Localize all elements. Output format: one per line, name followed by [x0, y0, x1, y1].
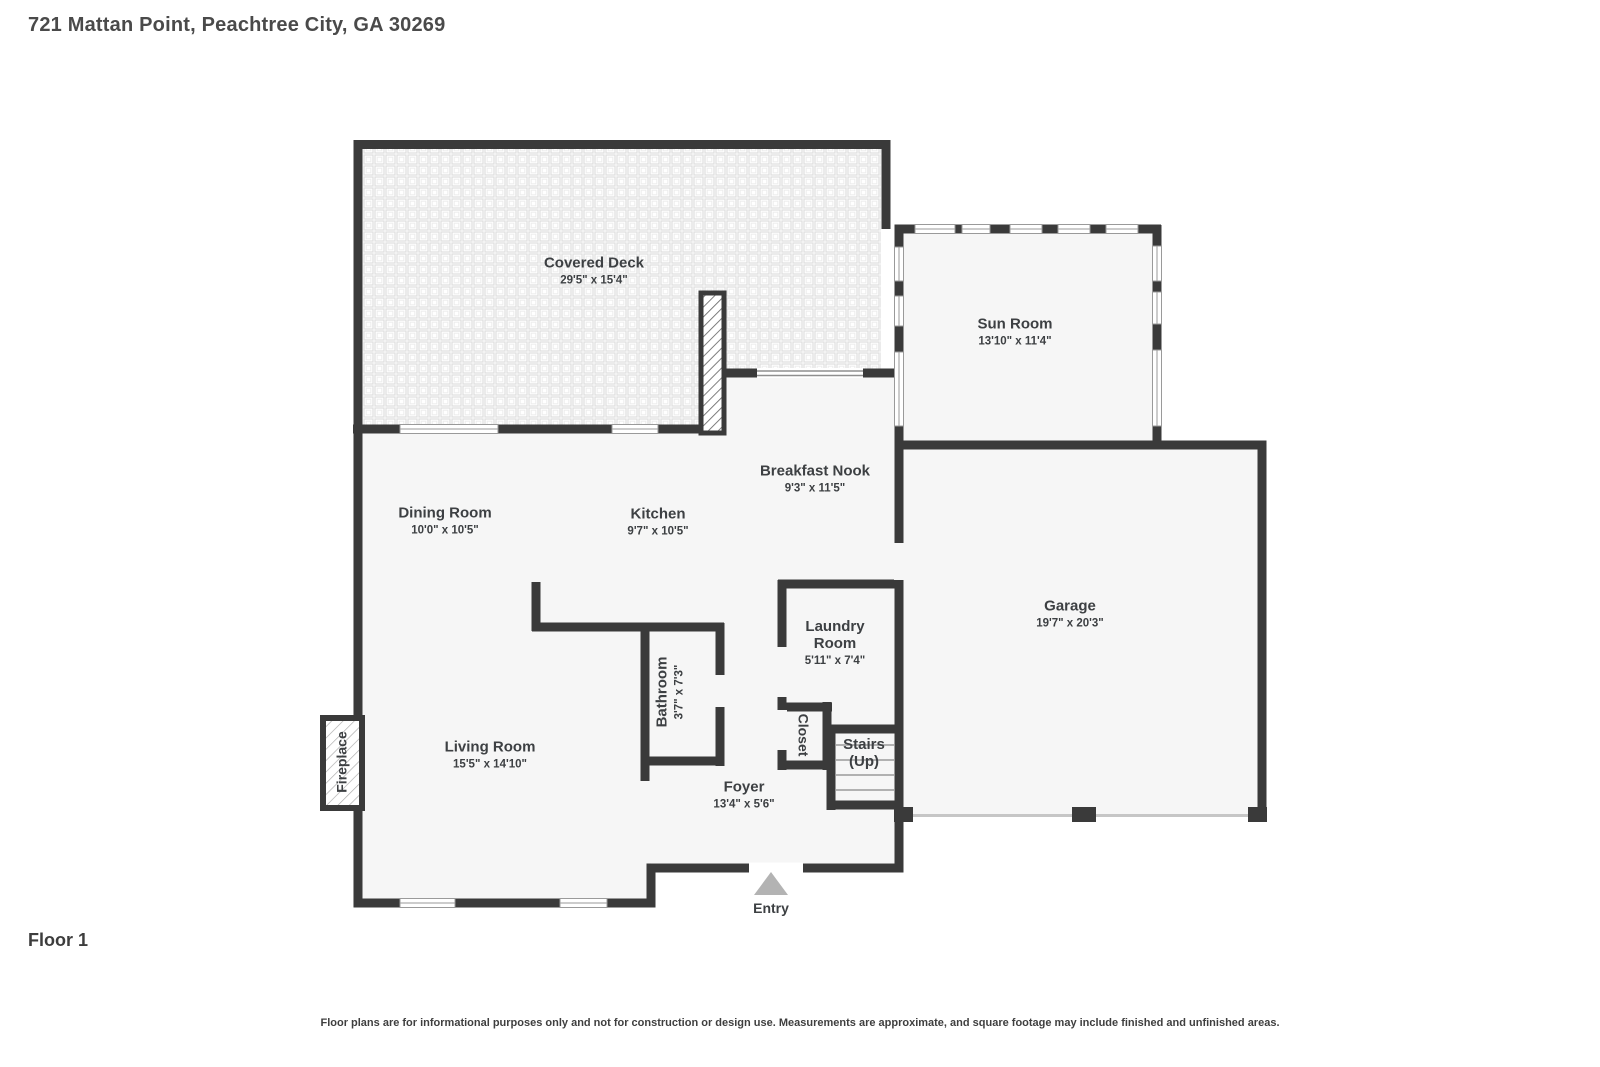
room-label-bathroom: Bathroom 3'7" x 7'3" [654, 657, 689, 728]
entry-arrow-icon [754, 872, 788, 895]
room-name: Bathroom [654, 657, 671, 728]
room-label-kitchen: Kitchen 9'7" x 10'5" [627, 506, 688, 541]
disclaimer-text: Floor plans are for informational purpos… [0, 1017, 1600, 1029]
room-name: Kitchen [627, 506, 688, 523]
room-label-dining-room: Dining Room 10'0" x 10'5" [398, 505, 491, 540]
room-label-closet: Closet [795, 714, 812, 757]
room-dims: 13'4" x 5'6" [713, 797, 774, 814]
stairs-direction: (Up) [843, 753, 885, 770]
room-name: Foyer [713, 779, 774, 796]
room-label-sun-room: Sun Room 13'10" x 11'4" [978, 316, 1053, 351]
room-label-foyer: Foyer 13'4" x 5'6" [713, 779, 774, 814]
floorplan-page: 721 Mattan Point, Peachtree City, GA 302… [0, 0, 1600, 1067]
room-name: Garage [1036, 598, 1104, 615]
room-label-stairs: Stairs (Up) [843, 736, 885, 770]
room-name: Sun Room [978, 316, 1053, 333]
room-dims: 13'10" x 11'4" [978, 334, 1053, 351]
kitchen-chimney-hatch [701, 293, 724, 433]
room-dims: 9'3" x 11'5" [760, 481, 870, 498]
room-dims: 15'5" x 14'10" [445, 757, 536, 774]
floor-label: Floor 1 [28, 930, 88, 951]
room-name: Stairs [843, 736, 885, 753]
room-name: Living Room [445, 739, 536, 756]
room-name: Breakfast Nook [760, 463, 870, 480]
room-label-fireplace: Fireplace [334, 731, 351, 792]
room-name: Closet [795, 714, 812, 757]
room-label-laundry-room: Laundry Room 5'11" x 7'4" [789, 618, 881, 670]
room-label-garage: Garage 19'7" x 20'3" [1036, 598, 1104, 633]
room-label-living-room: Living Room 15'5" x 14'10" [445, 739, 536, 774]
floorplan-drawing [0, 0, 1600, 1067]
room-dims: 9'7" x 10'5" [627, 524, 688, 541]
room-name: Fireplace [334, 731, 351, 792]
room-name: Laundry Room [789, 618, 881, 652]
room-dims: 10'0" x 10'5" [398, 523, 491, 540]
room-name: Covered Deck [544, 255, 644, 272]
room-label-covered-deck: Covered Deck 29'5" x 15'4" [544, 255, 644, 290]
room-dims: 29'5" x 15'4" [544, 273, 644, 290]
room-name: Dining Room [398, 505, 491, 522]
room-dims: 3'7" x 7'3" [672, 657, 689, 728]
room-dims: 5'11" x 7'4" [789, 653, 881, 670]
entry-label: Entry [753, 900, 789, 916]
room-dims: 19'7" x 20'3" [1036, 616, 1104, 633]
room-label-breakfast-nook: Breakfast Nook 9'3" x 11'5" [760, 463, 870, 498]
